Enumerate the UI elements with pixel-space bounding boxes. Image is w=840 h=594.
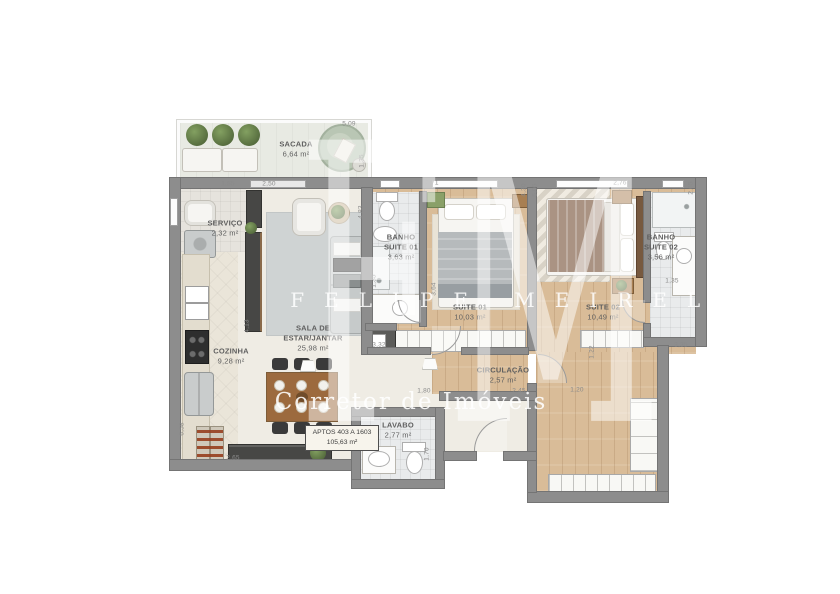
unit-numbers: APTOS 403 A 1603 (309, 428, 375, 438)
room-label-suite-02: SUITE 0210,49 m² (586, 302, 620, 322)
laundry-window (170, 198, 178, 226)
dimension-label: 3,64 (431, 282, 438, 295)
wall-bottom-right (528, 492, 668, 502)
wall-hall-top-a (368, 348, 430, 354)
room-name: SACADA (279, 139, 312, 149)
wall-between-suites (528, 188, 536, 350)
plate (318, 380, 329, 391)
cooktop (185, 330, 209, 364)
wall-entry-b (504, 452, 536, 460)
dimension-label: 6,58 (179, 422, 186, 435)
room-label-servico: SERVIÇO2,32 m² (207, 218, 242, 238)
dimension-label: 1,55 (221, 181, 234, 188)
plant (212, 124, 234, 146)
room-name: SALA DE ESTAR/JANTAR (283, 323, 342, 343)
suite-02-closet-shelves (630, 398, 658, 472)
room-label-banho-suite-02: BANHO SUITE 023,56 m² (644, 232, 678, 261)
dimension-label: 1,35 (665, 278, 678, 285)
side-table-plant (331, 205, 345, 219)
wall-suite02-lower-left (528, 384, 536, 492)
dimension-label: 5,05 (532, 183, 539, 196)
room-name: SERVIÇO (207, 218, 242, 228)
tv-panel-plant (245, 222, 257, 234)
bath-02-sink (676, 248, 692, 264)
dimension-label: 1,35 (371, 274, 378, 287)
plant (238, 124, 260, 146)
suite-01-plant-box (427, 192, 445, 208)
dimension-label: 5,09 (342, 121, 355, 128)
dimension-label: 2,65 (226, 455, 239, 462)
bed-pillow (620, 202, 634, 236)
room-label-sala-estar-jantar: SALA DE ESTAR/JANTAR25,98 m² (283, 323, 342, 352)
room-area: 9,28 m² (213, 356, 249, 366)
wall-lavabo-top (352, 408, 444, 416)
suite-02-sheet (604, 202, 620, 272)
plate (318, 402, 329, 413)
planter-box (222, 148, 258, 172)
room-area: 10,49 m² (586, 312, 620, 322)
suite-01-duvet (438, 232, 512, 290)
dining-chair (272, 422, 288, 434)
dimension-label: 2,76 (613, 180, 626, 187)
unit-area: 105,63 m² (309, 438, 375, 448)
planter-box (182, 148, 222, 172)
bath-01-window (380, 180, 400, 188)
room-area: 10,03 m² (453, 312, 487, 322)
sofa-pillow (333, 242, 361, 256)
dimension-label: 2,45 (512, 388, 525, 395)
dimension-label: 3,32 (372, 342, 385, 349)
dimension-label: 3,35 (674, 342, 687, 349)
dimension-label: 1,70 (424, 447, 431, 460)
room-label-banho-suite-01: BANHO SUITE 013,63 m² (384, 232, 418, 261)
plate (274, 402, 285, 413)
room-label-circulacao: CIRCULAÇÃO2,57 m² (477, 365, 529, 385)
lavabo-sink (368, 451, 390, 467)
suite-01-window (432, 180, 498, 188)
table-centerpiece (296, 392, 308, 402)
suite-02-nightstand (612, 190, 632, 204)
room-name: SUITE 02 (586, 302, 620, 312)
dimension-label: 1,22 (589, 345, 596, 358)
plate (296, 380, 307, 391)
dimension-label: 4,30 (521, 183, 528, 196)
room-area: 6,64 m² (279, 149, 312, 159)
room-name: BANHO SUITE 02 (644, 232, 678, 252)
room-name: BANHO SUITE 01 (384, 232, 418, 252)
room-area: 2,57 m² (477, 375, 529, 385)
dimension-label: 2,65 (688, 181, 695, 194)
suite-02-wardrobe-bottom (548, 474, 656, 492)
balcony-glass-door (250, 180, 306, 188)
bath-02-window (662, 180, 684, 188)
dimension-label: 1,20 (570, 387, 583, 394)
refrigerator (184, 372, 214, 416)
suite-02-duvet (548, 200, 604, 272)
wall-entry-a (444, 452, 476, 460)
suite-02-bench-plant (616, 280, 627, 291)
dining-chair (272, 358, 288, 370)
kitchen-sink (185, 286, 209, 320)
tv-panel (245, 232, 262, 332)
armchair (292, 198, 326, 236)
room-area: 2,77 m² (382, 430, 414, 440)
room-name: COZINHA (213, 346, 249, 356)
dimension-label: 1,80 (417, 388, 430, 395)
bed-pillow (476, 204, 506, 220)
suite-01-bed-throw (438, 284, 512, 298)
floor-plan: SACADA6,64 m²SERVIÇO2,32 m²COZINHA9,28 m… (0, 0, 840, 594)
wall-bath01-bottom (366, 324, 396, 330)
wall-right (696, 178, 706, 346)
room-area: 3,56 m² (644, 252, 678, 262)
dimension-label: 2,71 (425, 180, 438, 187)
plant (186, 124, 208, 146)
room-area: 25,98 m² (283, 343, 342, 353)
wall-hall-top-b (462, 348, 528, 354)
room-label-sacada: SACADA6,64 m² (279, 139, 312, 159)
room-label-cozinha: COZINHA9,28 m² (213, 346, 249, 366)
wall-lavabo-right (436, 408, 444, 488)
dining-chair (316, 358, 332, 370)
plate (274, 380, 285, 391)
unit-info-box: APTOS 403 A 1603 105,63 m² (305, 425, 379, 451)
toilet-bowl (406, 451, 423, 474)
room-area: 2,32 m² (207, 228, 242, 238)
room-name: CIRCULAÇÃO (477, 365, 529, 375)
toilet-bowl (379, 201, 395, 221)
wall-bottom-living (170, 460, 360, 470)
wall-right-lower (658, 346, 668, 502)
sofa-pillow (333, 274, 361, 288)
plate (296, 402, 307, 413)
room-area: 3,63 m² (384, 252, 418, 262)
room-label-lavabo: LAVABO2,77 m² (382, 420, 414, 440)
shower (652, 192, 696, 228)
room-label-suite-01: SUITE 0110,03 m² (453, 302, 487, 322)
room-name: LAVABO (382, 420, 414, 430)
sofa-pillow (333, 258, 361, 272)
sofa-pillow (333, 298, 361, 312)
wall-lavabo-bottom (352, 480, 444, 488)
dimension-label: 4,83 (358, 205, 365, 218)
dimension-label: 2,50 (262, 181, 275, 188)
bed-pillow (620, 238, 634, 272)
dimension-label: 4,13 (244, 319, 251, 332)
dimension-label: 1,35 (359, 154, 366, 167)
bed-pillow (444, 204, 474, 220)
room-name: SUITE 01 (453, 302, 487, 312)
